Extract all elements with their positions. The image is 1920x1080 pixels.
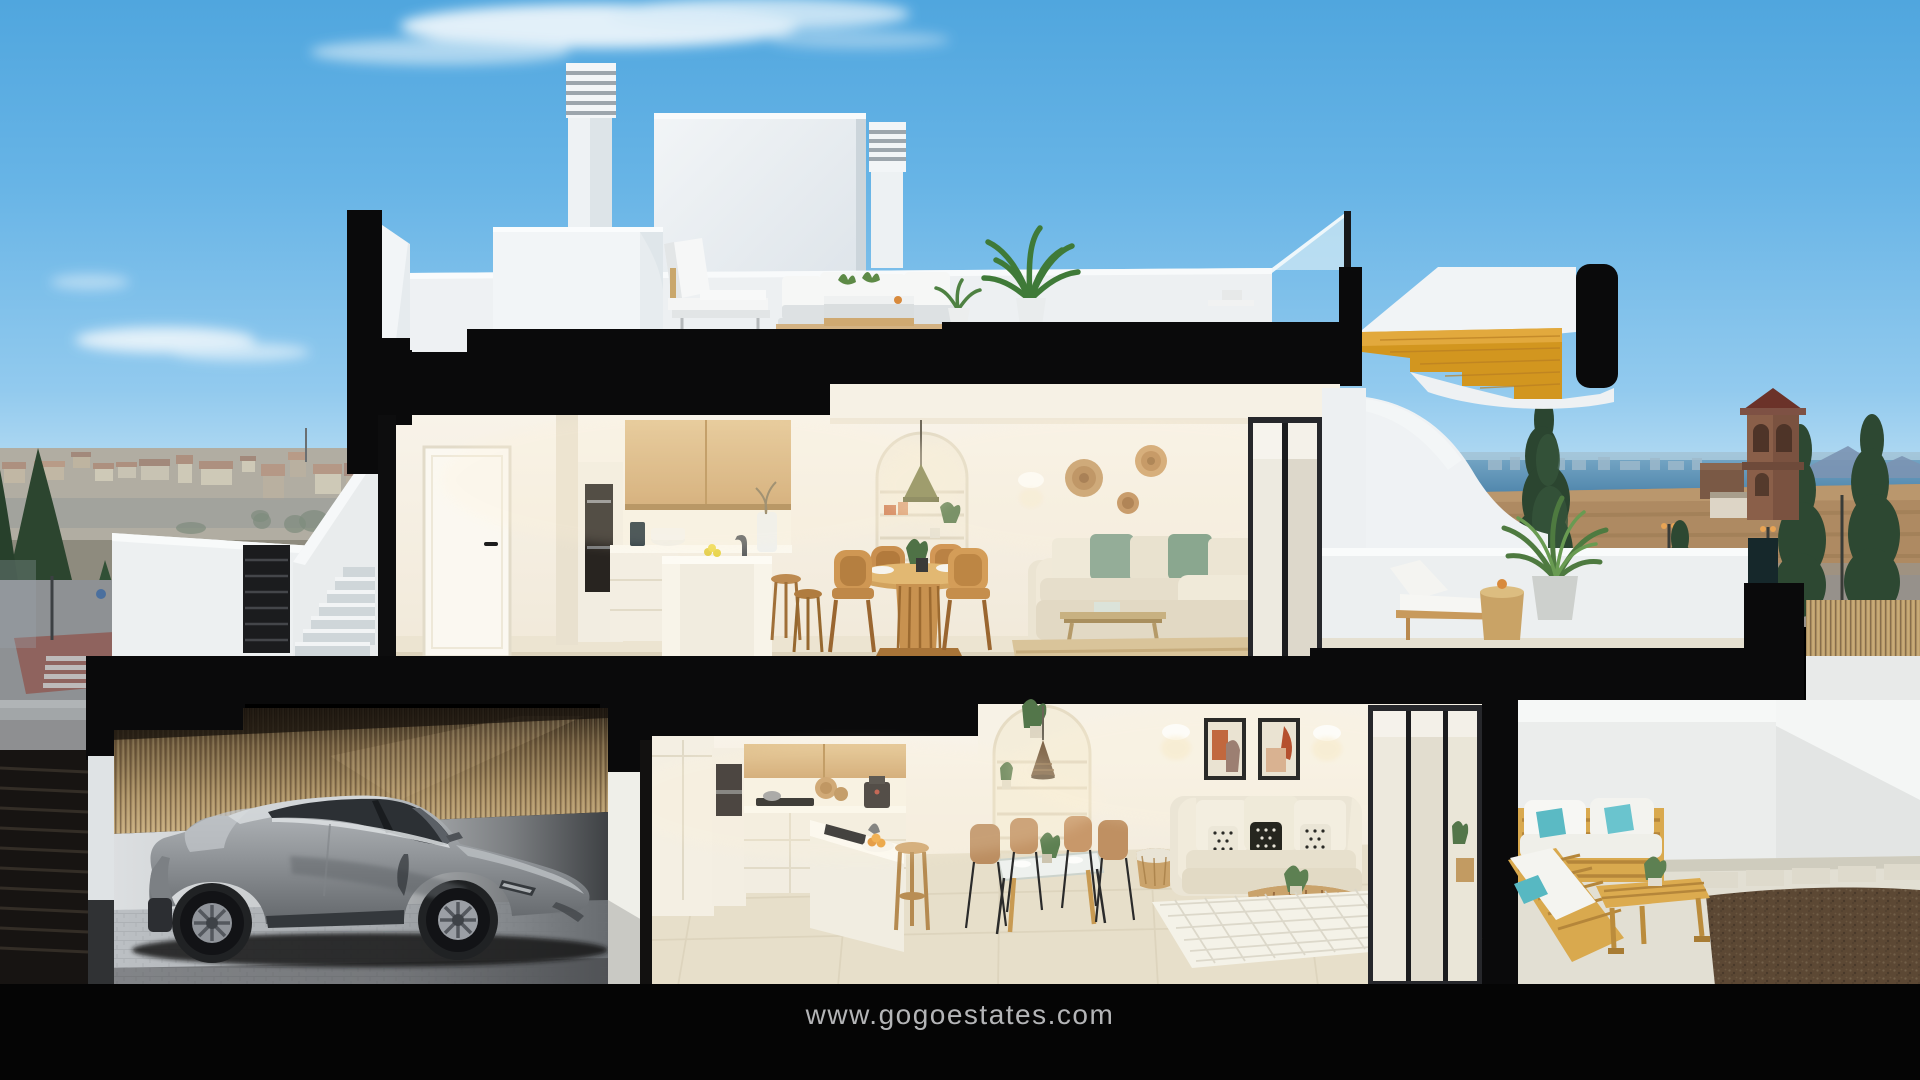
- svg-text:www.gogoestates.com: www.gogoestates.com: [805, 999, 1115, 1030]
